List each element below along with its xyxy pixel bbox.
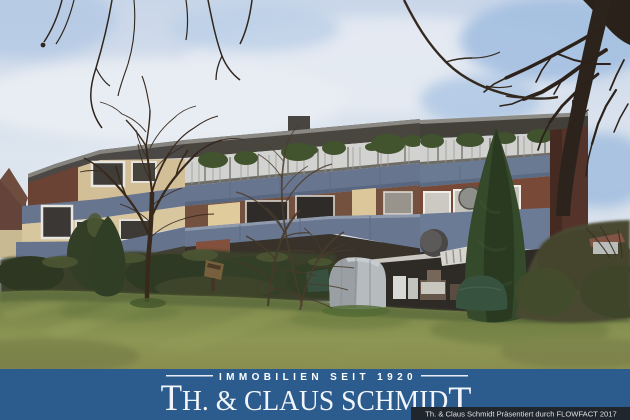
svg-text:IMMOBILIEN SEIT 1920: IMMOBILIEN SEIT 1920 xyxy=(219,372,417,383)
svg-text:Th. & Claus Schmidt Präsentier: Th. & Claus Schmidt Präsentiert durch FL… xyxy=(425,409,616,418)
